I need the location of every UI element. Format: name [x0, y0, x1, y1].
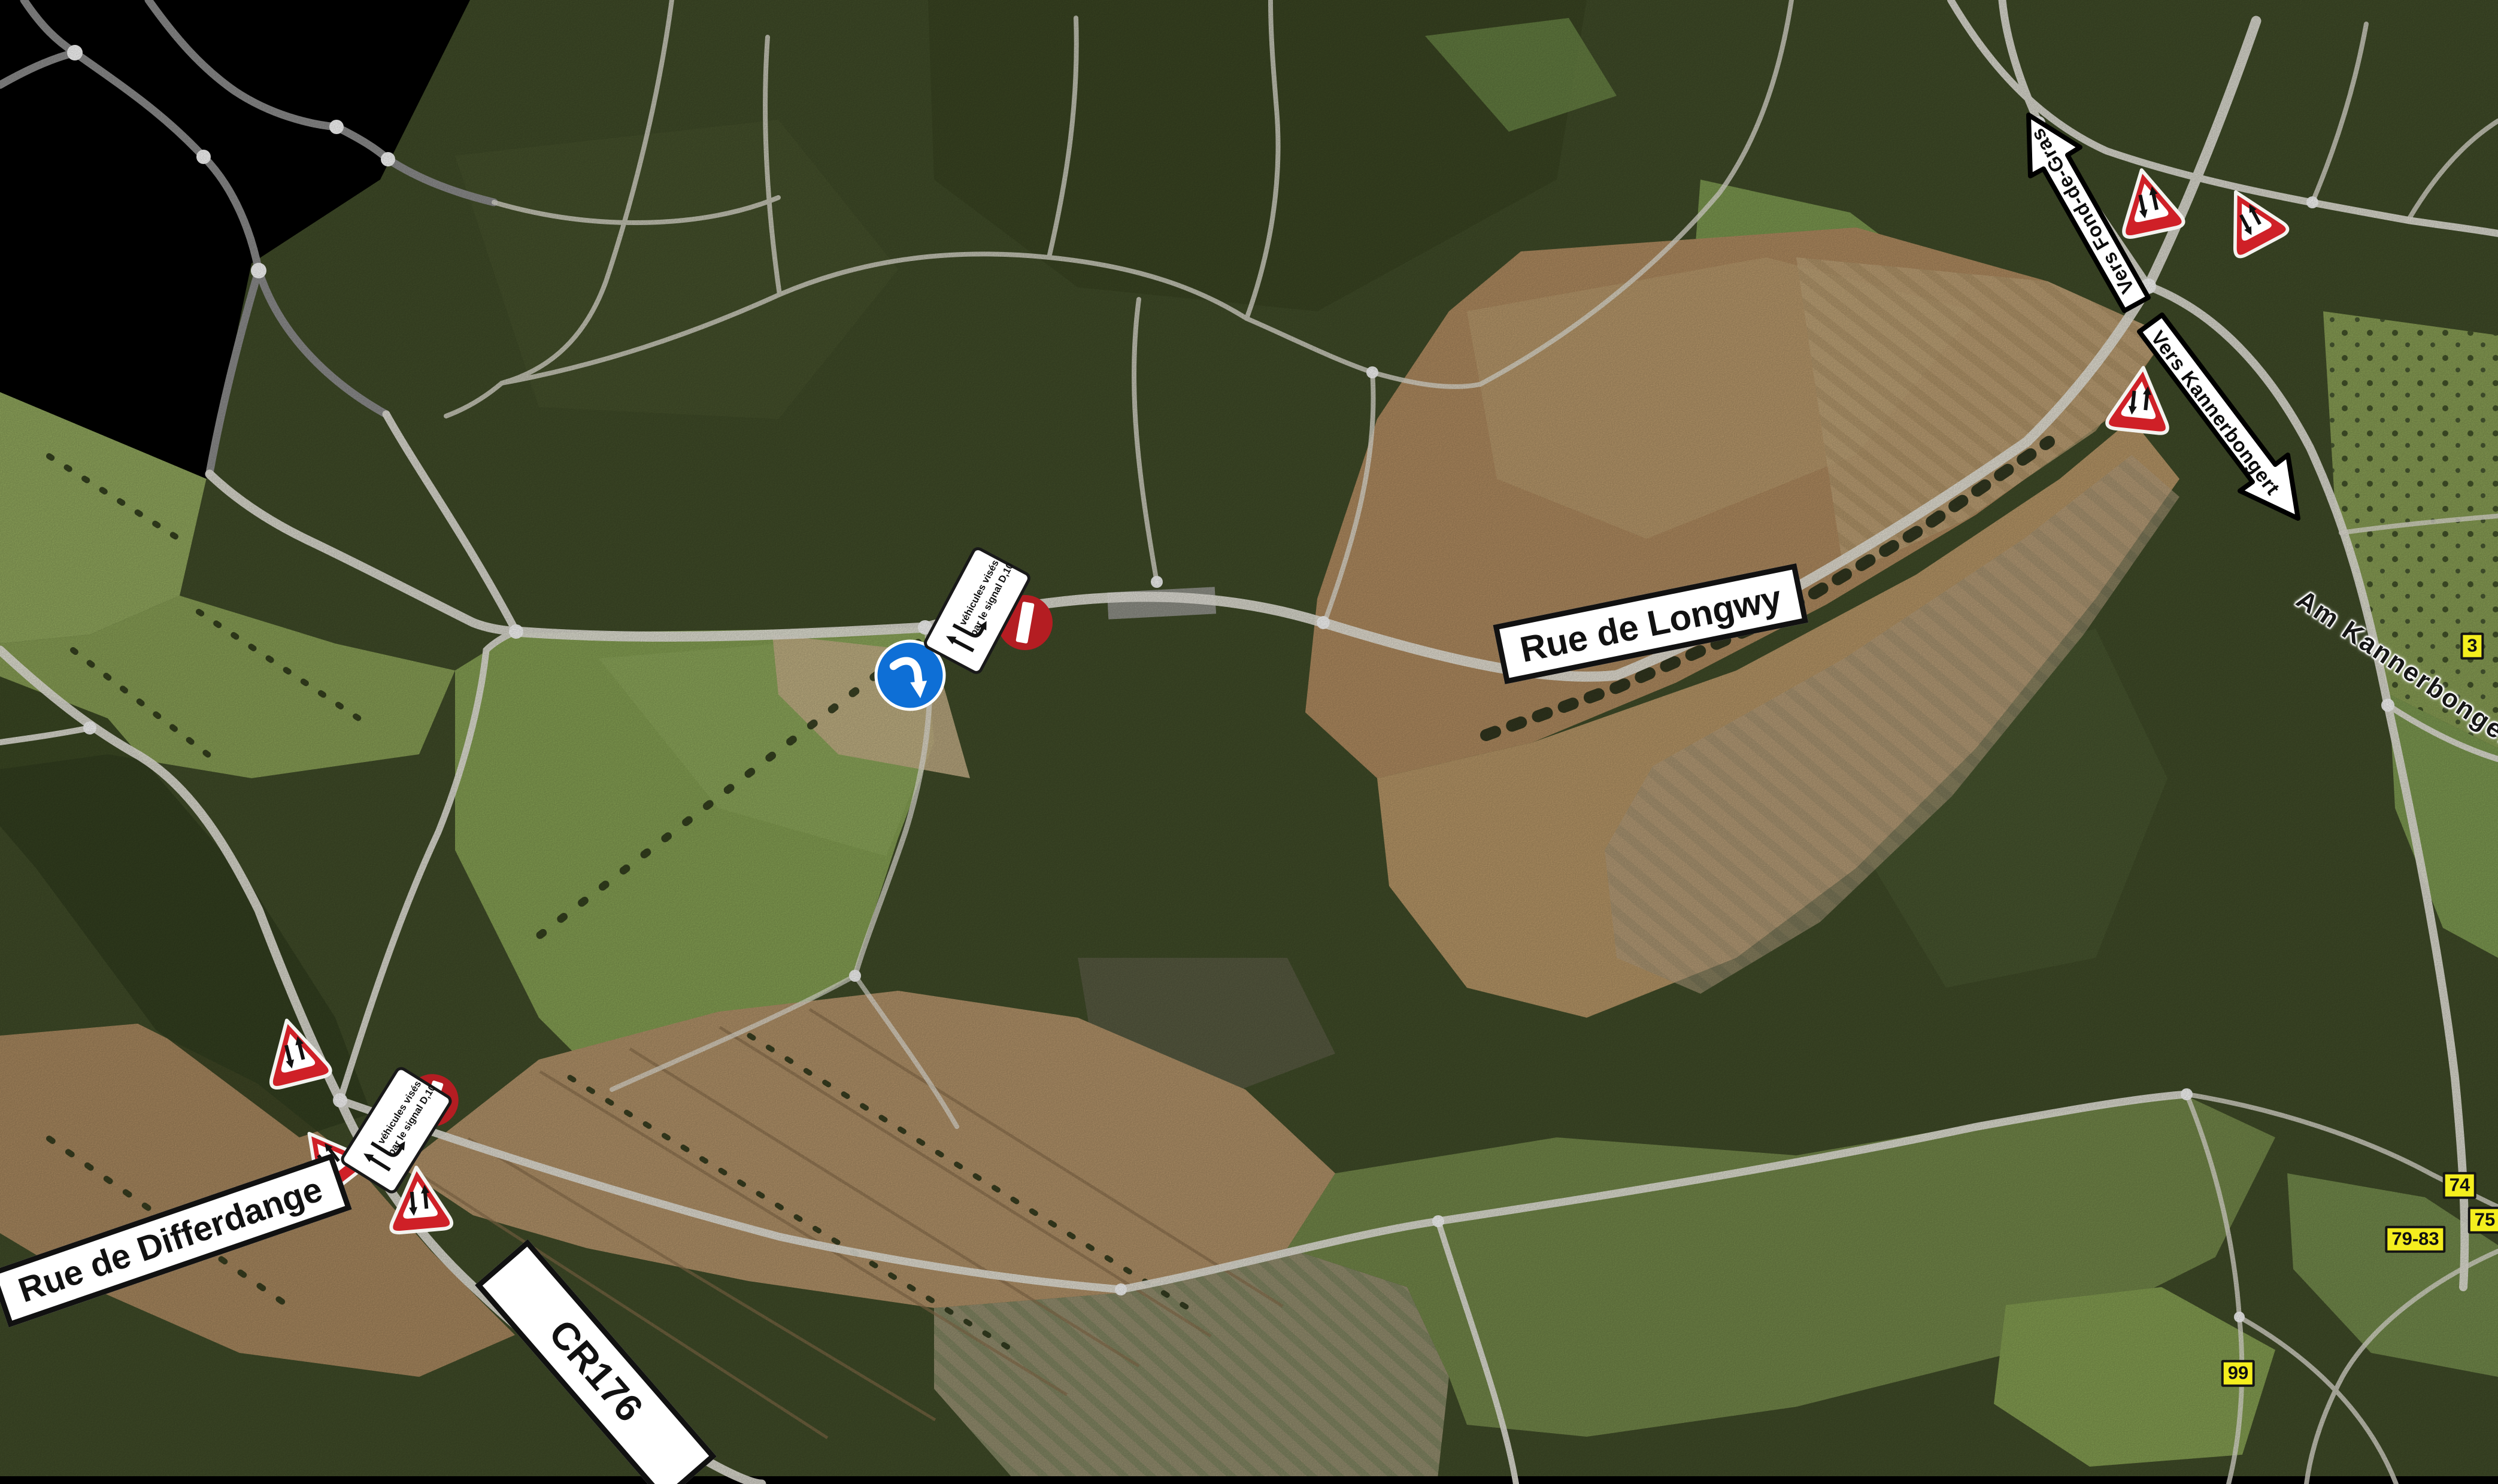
map-canvas: véhicules visés par le signal D,10 véhic…	[0, 0, 2498, 1484]
aerial-map: véhicules visés par le signal D,10 véhic…	[0, 0, 2498, 1484]
house-number-badge: 99	[2221, 1360, 2255, 1387]
house-number-badge: 3	[2460, 633, 2484, 660]
house-number-badge: 75	[2468, 1207, 2498, 1234]
house-number-badge: 79-83	[2385, 1226, 2445, 1253]
house-number-badge: 74	[2443, 1172, 2476, 1199]
photo-grain	[0, 0, 2498, 1484]
